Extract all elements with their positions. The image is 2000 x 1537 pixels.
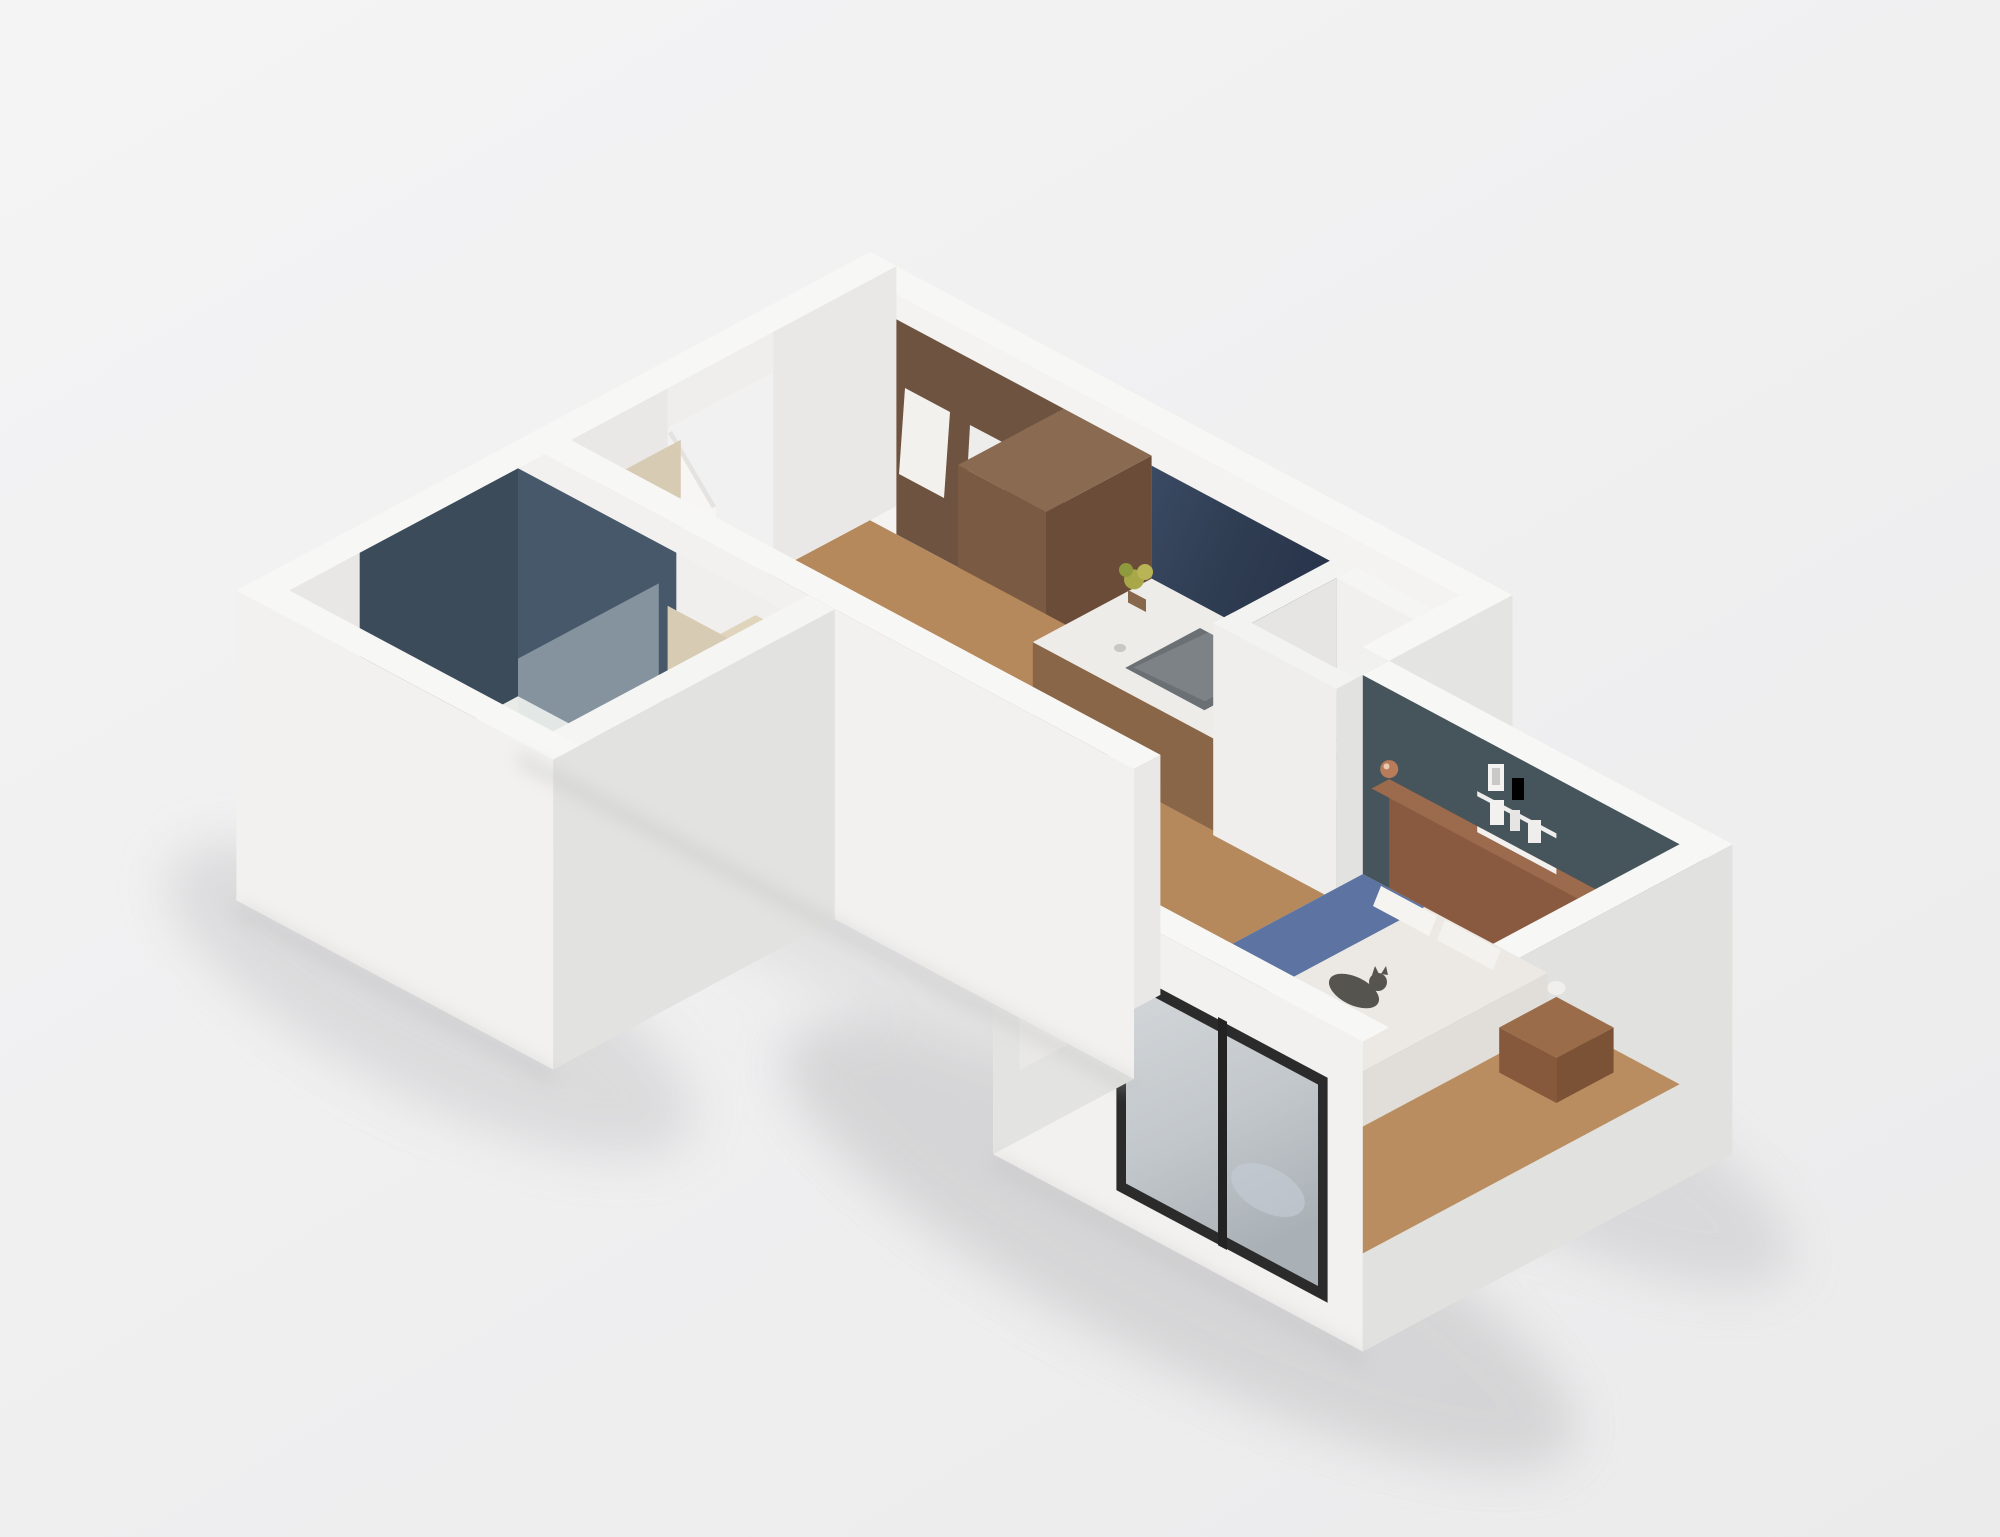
wall-sconce-highlight [1384, 763, 1390, 769]
shelf-frame-1-inner [1492, 768, 1500, 785]
shelf-frame-2 [1512, 778, 1524, 800]
counter-item [1114, 644, 1126, 652]
plant-foliage-2 [1137, 564, 1153, 580]
window-mullion [1218, 1017, 1227, 1250]
plant-foliage-3 [1119, 563, 1133, 577]
shelf-box [1528, 820, 1541, 843]
floorplan-scene: AC [0, 0, 2000, 1537]
wall-sconce [1380, 760, 1398, 778]
shelf-book-1 [1490, 800, 1504, 825]
cat-head [1369, 973, 1387, 991]
shelf-book-2 [1510, 810, 1520, 831]
lamp-shade [1547, 981, 1565, 995]
